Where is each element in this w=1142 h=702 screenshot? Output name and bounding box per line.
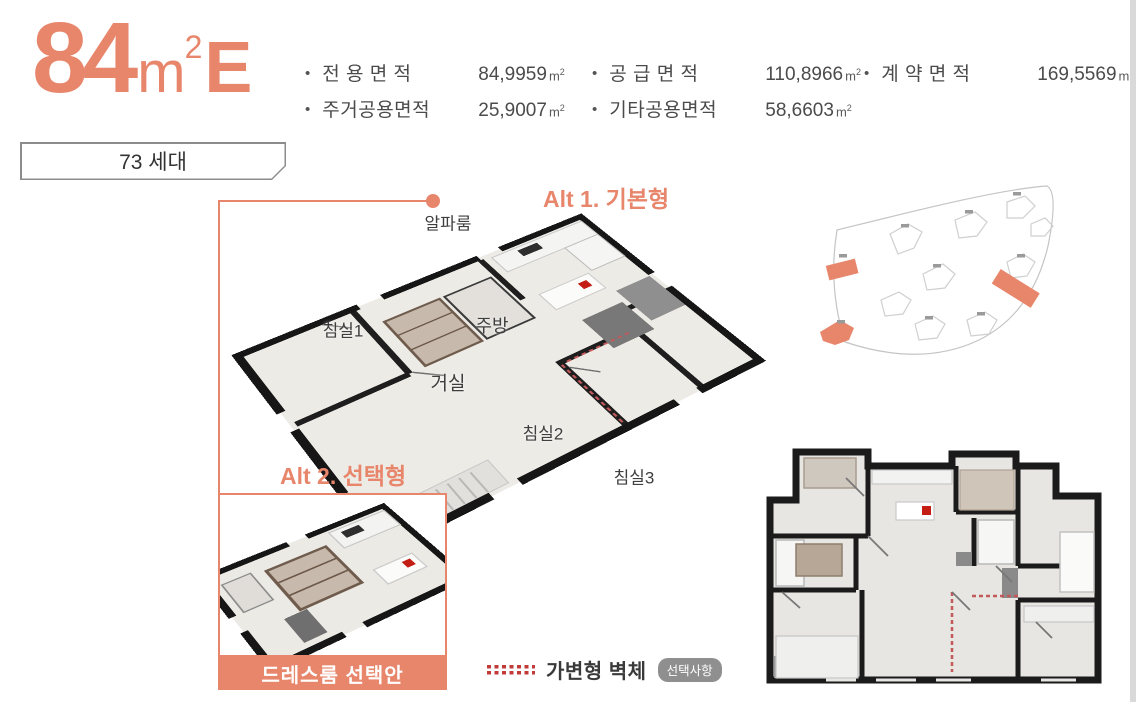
bullet-icon: • — [864, 65, 869, 82]
site-boundary — [834, 186, 1053, 354]
spec-unit: m2 — [836, 103, 852, 119]
alt2-thumbnail — [218, 493, 447, 657]
utility-room-floor — [960, 470, 1014, 510]
bed — [1060, 532, 1094, 592]
spec-supply-area: • 공 급 면 적 110,8966 m2 — [592, 59, 861, 86]
stove-icon — [922, 506, 931, 515]
alt2-3d-graphic — [218, 503, 447, 657]
spec-contract-area: • 계 약 면 적 169,5569 m2 — [864, 59, 1134, 86]
alt2-option-type-label: Alt 2. 선택형 — [280, 457, 406, 491]
spec-value: 58,6603 — [765, 100, 834, 122]
closet — [1024, 606, 1094, 622]
page-edge-line — [1130, 0, 1136, 702]
spec-value: 169,5569 — [1037, 64, 1116, 86]
bed — [796, 544, 842, 576]
unit-size-number: 84 — [32, 8, 133, 108]
spec-exclusive-area: • 전 용 면 적 84,9959 m2 — [305, 59, 565, 86]
room-label-alpha: 알파룸 — [425, 210, 472, 235]
unit-size-sup: 2 — [185, 29, 203, 66]
room-label-bedroom1: 침실1 — [323, 317, 364, 342]
spec-residential-common-area: • 주거공용면적 25,9007 m2 — [305, 95, 565, 122]
dashed-wall-swatch-icon — [487, 664, 535, 675]
balcony — [776, 636, 858, 678]
bullet-icon: • — [305, 65, 310, 82]
bullet-icon: • — [592, 65, 597, 82]
kitchen-cabinets — [872, 470, 952, 484]
floorplan-2d — [756, 440, 1102, 692]
spec-label: 공 급 면 적 — [609, 59, 761, 86]
alt2-banner: 드레스룸 선택안 — [218, 657, 447, 690]
optional-badge: 선택사항 — [658, 658, 722, 682]
spec-label: 계 약 면 적 — [881, 59, 1033, 86]
bullet-icon: • — [592, 101, 597, 118]
room-label-bedroom2: 침실2 — [523, 420, 564, 445]
alt2-3d-svg — [218, 503, 447, 657]
site-plan — [795, 172, 1115, 387]
spec-value: 110,8966 — [765, 64, 843, 86]
legend: 가변형 벽체 선택사항 — [487, 655, 722, 684]
bathroom — [978, 520, 1014, 564]
legend-label: 가변형 벽체 — [546, 655, 647, 684]
brochure-page: 84 m 2 E • 전 용 면 적 84,9959 m2 • 공 급 면 적 … — [0, 0, 1142, 702]
wardrobe-block — [1002, 568, 1018, 598]
unit-type-title: 84 m 2 E — [32, 8, 252, 109]
wardrobe-block — [956, 552, 972, 566]
spec-label: 주거공용면적 — [322, 95, 474, 122]
spec-label: 전 용 면 적 — [322, 59, 474, 86]
room-label-living: 거실 — [431, 369, 466, 396]
alt1-basic-type-label: Alt 1. 기본형 — [543, 180, 669, 214]
spec-unit: m2 — [845, 67, 861, 83]
spec-unit: m2 — [549, 103, 565, 119]
room-label-bedroom3: 침실3 — [614, 464, 655, 489]
spec-label: 기타공용면적 — [609, 95, 761, 122]
unit-type-letter: E — [204, 27, 252, 109]
room-label-kitchen: 주방 — [475, 312, 508, 338]
spec-value: 84,9959 — [478, 64, 547, 86]
spec-value: 25,9007 — [478, 100, 547, 122]
spec-other-common-area: • 기타공용면적 58,6603 m2 — [592, 95, 852, 122]
spec-unit: m2 — [549, 67, 565, 83]
alt2-region-guide-left-line — [218, 200, 220, 495]
unit-size-m: m — [137, 39, 183, 106]
bed — [804, 458, 856, 488]
bullet-icon: • — [305, 101, 310, 118]
